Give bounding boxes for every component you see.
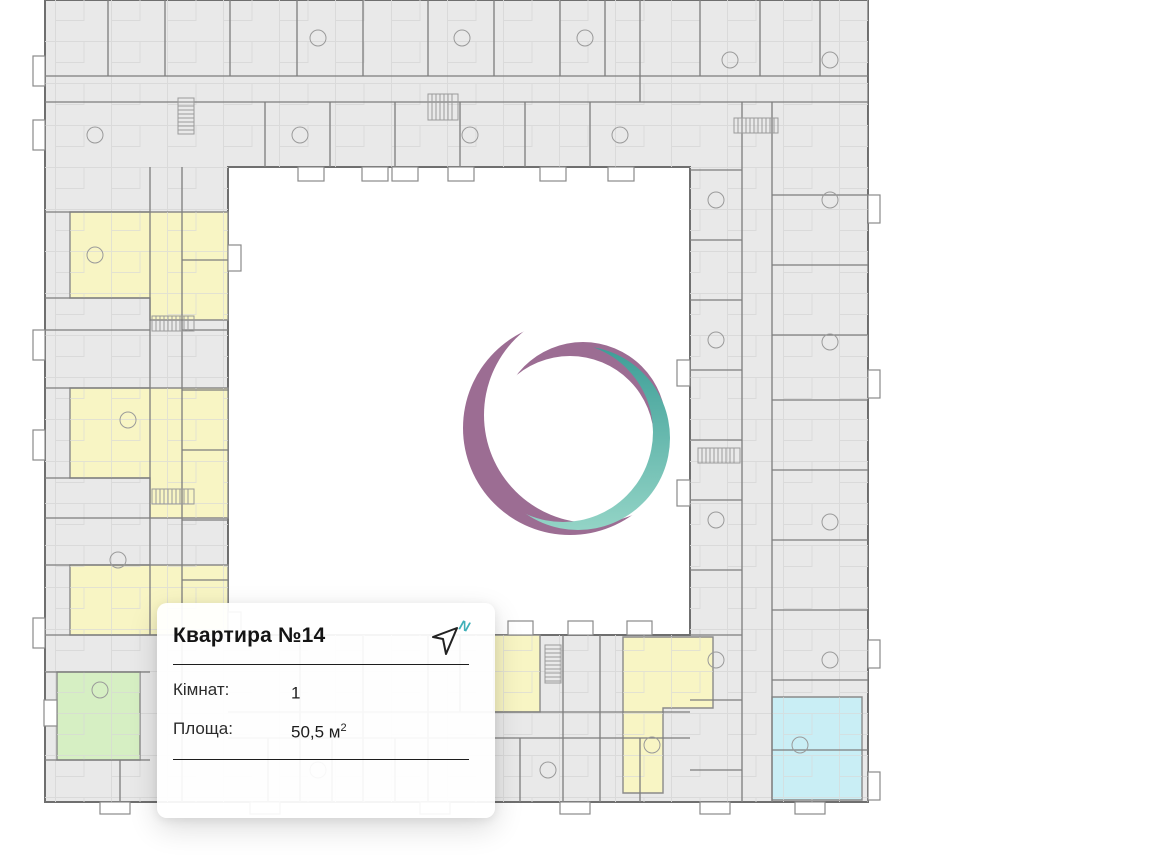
card-divider-bottom [173,759,469,760]
north-arrow-dart [433,628,457,654]
area-value: 50,5 м2 [291,718,347,743]
rooms-value: 1 [291,679,300,704]
area-label: Площа: [173,718,291,743]
logo-arc-teal [486,346,670,530]
logo-watermark [463,321,677,535]
rooms-label: Кімнат: [173,679,291,704]
stairwells [152,94,778,683]
card-divider-top [173,664,469,665]
apartment-info-card: Квартира №14 N Кімнат: 1 Площа: 50,5 м2 [157,603,495,818]
north-arrow-letter: N [457,616,472,635]
page: { "card": { "title": "Квартира №14", "fi… [0,0,1152,858]
area-unit-superscript: 2 [341,722,347,734]
card-title: Квартира №14 [173,623,425,648]
card-field-area: Площа: 50,5 м2 [173,718,469,743]
north-arrow-icon: N [429,616,475,662]
card-field-rooms: Кімнат: 1 [173,679,469,704]
